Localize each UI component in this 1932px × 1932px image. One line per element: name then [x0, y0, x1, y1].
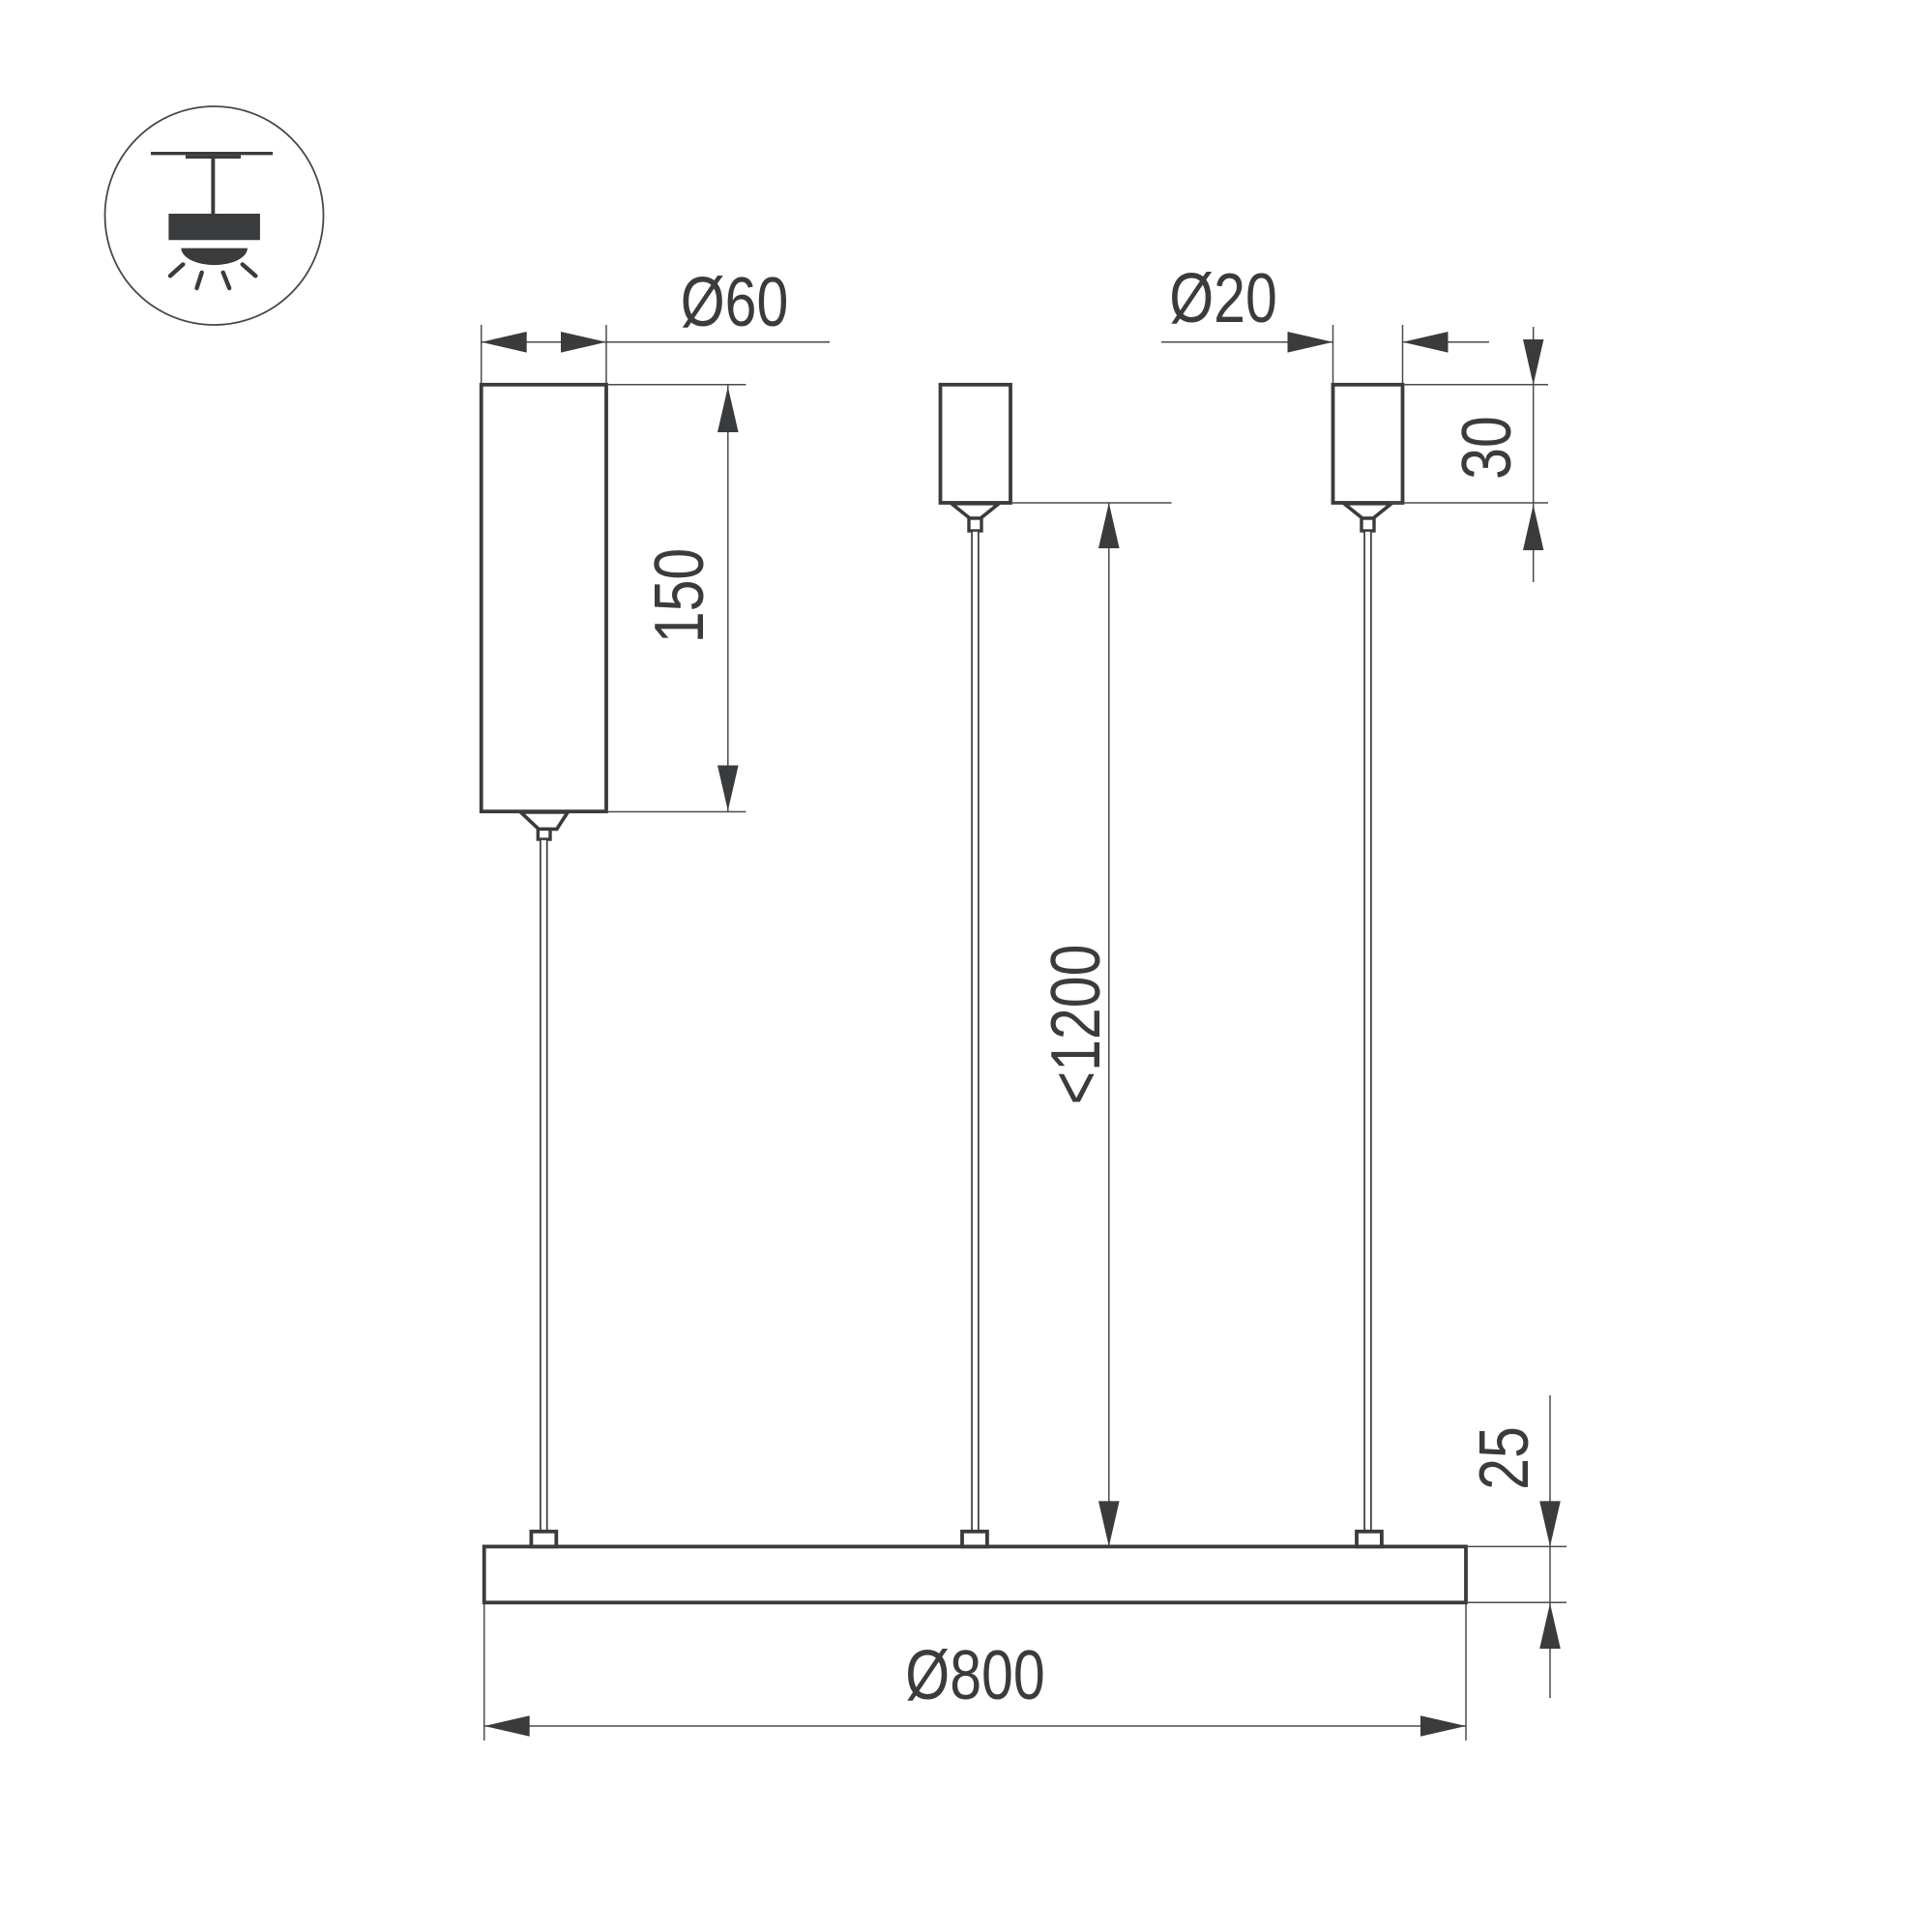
svg-text:150: 150 [639, 548, 717, 643]
svg-text:25: 25 [1464, 1426, 1542, 1490]
svg-text:Ø60: Ø60 [681, 262, 789, 340]
svg-text:<1200: <1200 [1036, 945, 1114, 1105]
svg-text:Ø800: Ø800 [905, 1635, 1044, 1713]
svg-text:Ø20: Ø20 [1169, 258, 1277, 337]
svg-text:30: 30 [1447, 416, 1525, 480]
